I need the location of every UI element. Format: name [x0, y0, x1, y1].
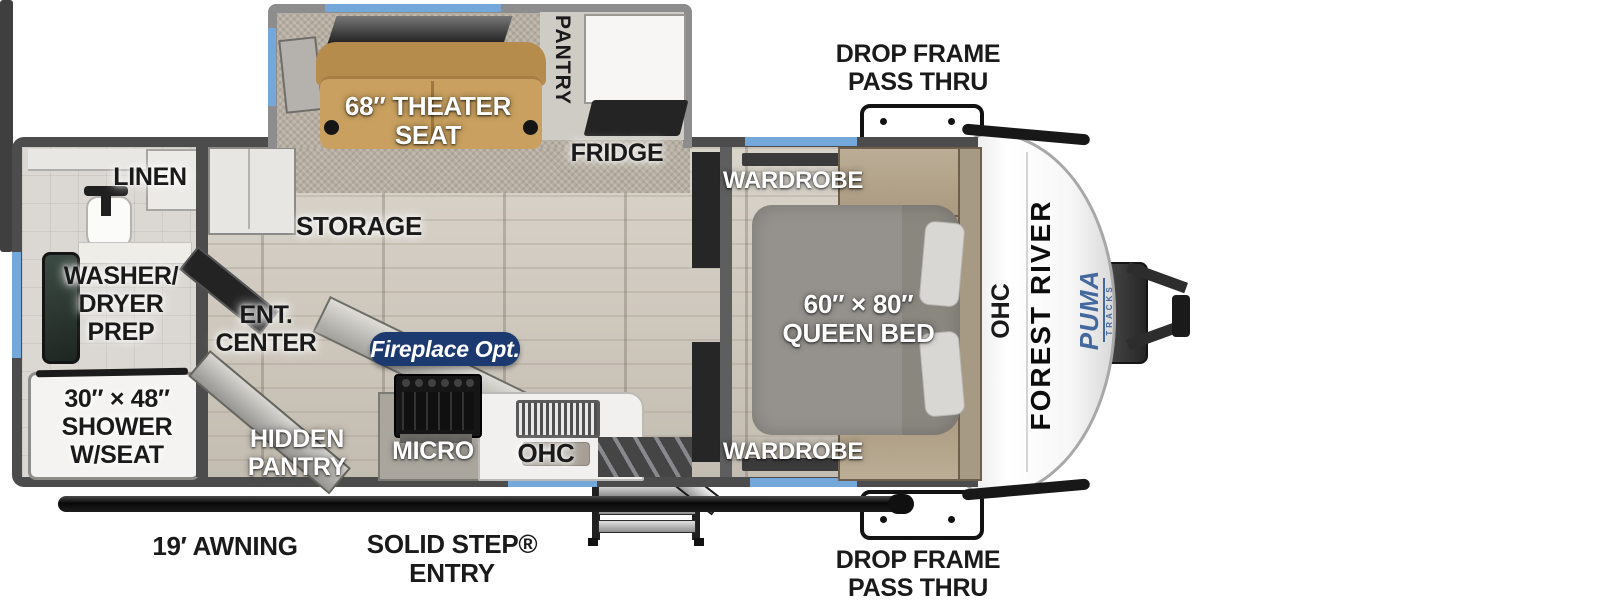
theater-seat-label: 68″ THEATER SEAT: [338, 92, 518, 150]
pantry-cabinet: [584, 14, 686, 104]
stove-knob: [428, 379, 436, 387]
fireplace-option-badge: Fireplace Opt.: [370, 332, 520, 366]
window-rear: [12, 252, 21, 358]
stove-grate: [402, 392, 474, 430]
forest-river-logo: FOREST RIVER: [1022, 147, 1060, 483]
bedroom-partition-panel: [692, 152, 720, 268]
bedroom-front-wall: [958, 147, 982, 481]
step-tread: [598, 520, 696, 533]
cooktop: [394, 374, 482, 438]
cupholder: [523, 120, 538, 135]
linen-label: LINEN: [104, 163, 196, 191]
queen-bed-label: 60″ × 80″ QUEEN BED: [766, 290, 951, 348]
storage-closet: [208, 147, 296, 235]
entry-landing: [598, 437, 692, 477]
step-foot: [588, 538, 598, 546]
wardrobe-label-bottom: WARDROBE: [718, 439, 868, 466]
awning-roller: [58, 496, 910, 512]
forest-river-logo-text: FOREST RIVER: [1025, 200, 1057, 431]
shower-label: 30″ × 48″ SHOWER W/SEAT: [42, 385, 192, 469]
tv-shelf: [327, 16, 512, 44]
hatch-latch-dot: [880, 118, 887, 125]
ohc-bedroom-label: OHC: [985, 266, 1017, 356]
bedroom-wall: [720, 147, 732, 477]
drop-frame-pass-thru-label-bottom: DROP FRAME PASS THRU: [810, 546, 1026, 602]
solid-step-entry-label: SOLID STEP® ENTRY: [362, 530, 542, 588]
puma-logo-text: PUMA: [1076, 270, 1102, 351]
bathroom-vanity: [78, 242, 192, 264]
wardrobe-label-top: WARDROBE: [718, 168, 868, 195]
window-bedroom-top: [745, 137, 857, 146]
pantry-label-text: PANTRY: [550, 15, 574, 105]
puma-tracks-text: TRACKS: [1106, 284, 1114, 335]
stove-knob: [402, 379, 410, 387]
hitch-coupler: [1172, 295, 1190, 337]
awning-roller-end: [888, 494, 914, 514]
step-foot: [694, 538, 704, 546]
toilet-hinge-stem: [101, 194, 111, 216]
ent-center-label: ENT. CENTER: [206, 301, 326, 357]
hatch-latch-dot: [948, 118, 955, 125]
ohc-bedroom-label-text: OHC: [987, 283, 1016, 339]
sink: [516, 400, 600, 438]
stove-knob: [466, 379, 474, 387]
bedroom-partition-panel: [692, 342, 720, 462]
refrigerator: [584, 100, 689, 136]
window-slideout-top: [325, 4, 501, 12]
fridge-label: FRIDGE: [562, 139, 672, 167]
micro-label: MICRO: [382, 437, 484, 465]
window-slideout-side: [268, 28, 276, 106]
puma-logo: PUMA TRACKS: [1067, 255, 1123, 365]
washer-dryer-prep-label: WASHER/ DRYER PREP: [50, 262, 192, 346]
ohc-kitchen-label: OHC: [494, 439, 598, 468]
stove-knob: [454, 379, 462, 387]
awning-label: 19′ AWNING: [130, 532, 320, 561]
stove-knob: [415, 379, 423, 387]
fireplace-option-label: Fireplace Opt.: [370, 336, 519, 363]
cupholder: [324, 120, 339, 135]
hidden-pantry-label: HIDDEN PANTRY: [234, 425, 360, 481]
closet-door-seam: [248, 149, 250, 229]
hatch-latch-dot: [948, 516, 955, 523]
floorplan-canvas: Fireplace Opt. DROP FRAME PASS THRU DROP…: [0, 0, 1600, 613]
storage-label: STORAGE: [296, 212, 416, 241]
hatch-latch-dot: [880, 516, 887, 523]
stove-knob: [441, 379, 449, 387]
drop-frame-pass-thru-label-top: DROP FRAME PASS THRU: [810, 40, 1026, 96]
pantry-label: PANTRY: [548, 0, 576, 120]
